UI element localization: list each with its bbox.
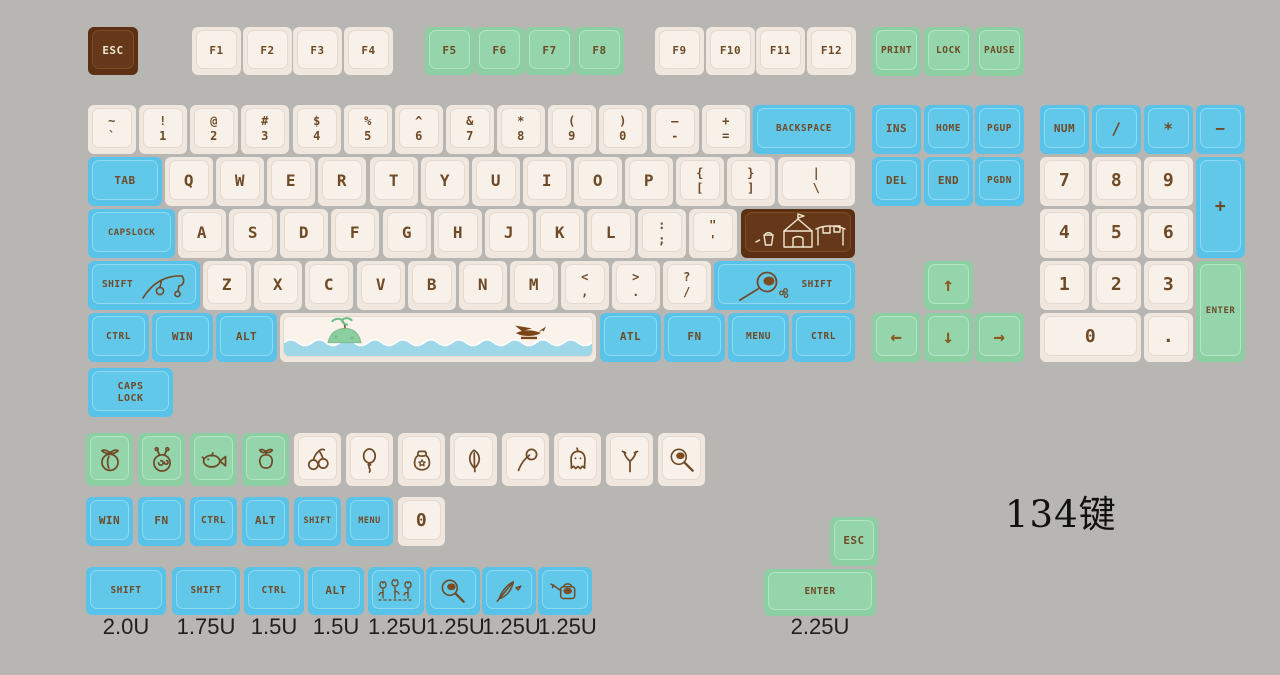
key-legend: Q — [184, 172, 194, 190]
key-print[interactable]: PRINT — [872, 27, 921, 76]
key-k[interactable]: K — [536, 209, 584, 258]
key-legend-bottom: 6 — [415, 130, 423, 144]
fishing-rod-icon — [140, 271, 186, 301]
key-numpad-0[interactable]: 0 — [1040, 313, 1141, 362]
key-legend: F10 — [720, 45, 741, 58]
key-legend-top: @ — [210, 115, 218, 129]
key-ctrl[interactable]: CTRL — [792, 313, 855, 362]
key-f3[interactable]: F3 — [293, 27, 342, 75]
key-arrow-left[interactable]: ← — [872, 313, 921, 362]
key-e[interactable]: E — [267, 157, 315, 206]
key-7[interactable]: &7 — [446, 105, 494, 154]
key-numpad-dot[interactable]: . — [1144, 313, 1193, 362]
key-arrow-right[interactable]: → — [975, 313, 1024, 362]
key-numpad-slash[interactable]: / — [1092, 105, 1141, 154]
key-fish[interactable] — [190, 433, 237, 486]
key-esc-green[interactable]: ESC — [830, 517, 878, 566]
key-legend: J — [504, 224, 514, 242]
key-q[interactable]: Q — [165, 157, 213, 206]
key-legend-bottom: = — [722, 130, 730, 144]
key-legend: WIN — [172, 331, 193, 344]
key-numpad-4[interactable]: 4 — [1040, 209, 1089, 258]
key-legend-bottom: 1 — [159, 130, 167, 144]
key-legend: 0 — [1085, 327, 1096, 348]
key-legend: W — [235, 172, 245, 190]
key-f9[interactable]: F9 — [655, 27, 704, 75]
key-p[interactable]: P — [625, 157, 673, 206]
key-legend: R — [337, 172, 347, 190]
key-legend: ENTER — [804, 587, 835, 598]
keyboard-layout: 134键 ESCF1F2F3F4F5F6F7F8F9F10F11F12PRINT… — [0, 0, 1280, 675]
key-enter-iso[interactable] — [741, 209, 855, 258]
key-numpad-2[interactable]: 2 — [1092, 261, 1141, 310]
key-f7[interactable]: F7 — [525, 27, 574, 75]
key-f11[interactable]: F11 — [756, 27, 805, 75]
key-5[interactable]: %5 — [344, 105, 392, 154]
size-label: 1.25U — [426, 614, 480, 640]
key-lock[interactable]: LOCK — [924, 27, 973, 76]
key-legend: F7 — [542, 45, 556, 58]
key-legend-bottom: 4 — [313, 130, 321, 144]
key-v[interactable]: V — [357, 261, 405, 310]
key-legend-top: { — [696, 167, 704, 181]
key-legend-top: | — [813, 167, 821, 181]
key-legend: TAB — [114, 175, 135, 188]
key-win[interactable]: WIN — [86, 497, 133, 546]
key-legend-top: % — [364, 115, 372, 129]
key-legend: PRINT — [881, 46, 912, 57]
key-o[interactable]: O — [574, 157, 622, 206]
key-pgup[interactable]: PGUP — [975, 105, 1024, 154]
key-win[interactable]: WIN — [152, 313, 213, 362]
key-net-small[interactable] — [658, 433, 705, 486]
key-legend: F8 — [592, 45, 606, 58]
key-n[interactable]: N — [459, 261, 507, 310]
key-legend: T — [389, 172, 399, 190]
key-legend: X — [273, 276, 283, 294]
key-legend: ATL — [620, 331, 641, 344]
key-feather[interactable] — [482, 567, 536, 615]
key-legend-bottom: LOCK — [117, 393, 143, 405]
key-legend: K — [555, 224, 565, 242]
key-legend: M — [529, 276, 539, 294]
key-legend: FN — [154, 515, 168, 528]
key-d[interactable]: D — [280, 209, 328, 258]
key-leaf[interactable] — [450, 433, 497, 486]
key-legend: ↓ — [943, 327, 955, 349]
key-legend: SHIFT — [102, 280, 133, 291]
key-legend: E — [286, 172, 296, 190]
key-legend-top: $ — [313, 115, 321, 129]
key-legend-bottom: ; — [658, 234, 666, 248]
key-legend-bottom: 8 — [517, 130, 525, 144]
key-numpad-7[interactable]: 7 — [1040, 157, 1089, 206]
key-ins[interactable]: INS — [872, 105, 921, 154]
page-title: 134键 — [1005, 484, 1117, 538]
key-legend-bottom: [ — [696, 182, 704, 196]
key-legend: ALT — [236, 331, 257, 344]
axe-icon — [511, 445, 541, 475]
key-axe[interactable] — [502, 433, 549, 486]
turnip-icon — [147, 445, 177, 475]
key-legend-bottom: 7 — [466, 130, 474, 144]
key-legend: F — [350, 224, 360, 242]
key-legend: + — [1215, 197, 1226, 218]
keycap-set-sheet: { "title": "134键", "palette": { "backgro… — [0, 0, 1280, 675]
key-legend: Z — [222, 276, 232, 294]
key-legend: L — [606, 224, 616, 242]
size-label: 1.5U — [244, 614, 304, 640]
key-pause[interactable]: PAUSE — [975, 27, 1024, 76]
key-z[interactable]: Z — [203, 261, 251, 310]
size-label: 2.0U — [86, 614, 166, 640]
key-legend: ↑ — [943, 275, 955, 297]
key-ctrl-15u[interactable]: CTRL — [244, 567, 304, 615]
key-ctrl[interactable]: CTRL — [88, 313, 149, 362]
key-legend: 8 — [1111, 171, 1122, 192]
key-slash[interactable]: ?/ — [663, 261, 711, 310]
key-legend: F12 — [821, 45, 842, 58]
key-legend: SHIFT — [303, 517, 331, 527]
key-grave[interactable]: ~` — [88, 105, 136, 154]
key-3[interactable]: #3 — [241, 105, 289, 154]
key-legend: S — [248, 224, 258, 242]
key-legend: MENU — [358, 517, 380, 527]
key-capslock[interactable]: CAPSLOCK — [88, 209, 175, 258]
key-legend-bottom: . — [632, 286, 640, 300]
key-legend: 0 — [416, 511, 427, 532]
key-legend: I — [542, 172, 552, 190]
key-legend-top: + — [722, 115, 730, 129]
key-turnip[interactable] — [138, 433, 185, 486]
size-label: 1.5U — [308, 614, 364, 640]
key-legend: CTRL — [811, 332, 836, 343]
key-balloon[interactable] — [346, 433, 393, 486]
key-legend: CTRL — [201, 516, 226, 527]
key-watering-can[interactable] — [538, 567, 592, 615]
key-legend: U — [491, 172, 501, 190]
key-f10[interactable]: F10 — [706, 27, 755, 75]
key-space[interactable] — [280, 313, 596, 362]
key-legend: − — [1215, 120, 1225, 138]
key-legend-top: # — [261, 115, 269, 129]
key-legend: 1 — [1059, 275, 1070, 296]
key-alt-15u[interactable]: ALT — [308, 567, 364, 615]
key-slingshot[interactable] — [606, 433, 653, 486]
key-legend: F2 — [260, 45, 274, 58]
key-arrow-up[interactable]: ↑ — [924, 261, 973, 310]
key-apple[interactable] — [242, 433, 289, 486]
key-f8[interactable]: F8 — [575, 27, 624, 75]
key-numpad-9[interactable]: 9 — [1144, 157, 1193, 206]
key-enter-225u[interactable]: ENTER — [764, 569, 876, 616]
key-legend: 2 — [1111, 275, 1122, 296]
key-legend: ALT — [325, 585, 346, 598]
key-legend: F6 — [492, 45, 506, 58]
key-legend: BACKSPACE — [776, 124, 832, 135]
key-t[interactable]: T — [370, 157, 418, 206]
key-m[interactable]: M — [510, 261, 558, 310]
key-s[interactable]: S — [229, 209, 277, 258]
key-legend: 9 — [1163, 171, 1174, 192]
key-legend: N — [478, 276, 488, 294]
bell-bag-icon — [407, 445, 437, 475]
key-legend-top: ? — [683, 271, 691, 285]
key-fn[interactable]: FN — [664, 313, 725, 362]
key-legend-top: ~ — [108, 115, 116, 129]
key-u[interactable]: U — [472, 157, 520, 206]
key-legend: CTRL — [262, 586, 287, 597]
key-home[interactable]: HOME — [924, 105, 973, 154]
key-legend: ENTER — [1206, 306, 1236, 316]
key-legend-bottom: - — [671, 130, 679, 144]
key-wisp[interactable] — [554, 433, 601, 486]
key-end[interactable]: END — [924, 157, 973, 206]
balloon-icon — [355, 445, 385, 475]
key-legend: CTRL — [106, 332, 131, 343]
key-8[interactable]: *8 — [497, 105, 545, 154]
key-bracket-close[interactable]: }] — [727, 157, 775, 206]
key-shift-175u[interactable]: SHIFT — [172, 567, 240, 615]
key-legend: F4 — [361, 45, 375, 58]
key-comma[interactable]: <, — [561, 261, 609, 310]
key-legend: 4 — [1059, 223, 1070, 244]
key-legend: 6 — [1163, 223, 1174, 244]
key-1[interactable]: !1 — [139, 105, 187, 154]
key-legend-bottom: 0 — [619, 130, 627, 144]
key-legend-top: < — [581, 271, 589, 285]
key-legend: P — [644, 172, 654, 190]
key-legend: PGDN — [987, 176, 1012, 187]
key-legend: C — [324, 276, 334, 294]
key-legend: F5 — [442, 45, 456, 58]
key-legend: V — [376, 276, 386, 294]
key-legend: F11 — [770, 45, 791, 58]
key-f2[interactable]: F2 — [243, 27, 292, 75]
key-legend: INS — [886, 123, 907, 136]
key-legend-bottom: ] — [747, 182, 755, 196]
key-legend: PGUP — [987, 124, 1012, 135]
key-legend: B — [427, 276, 437, 294]
key-numpad-plus[interactable]: + — [1196, 157, 1245, 258]
key-f[interactable]: F — [331, 209, 379, 258]
key-a[interactable]: A — [178, 209, 226, 258]
key-menu[interactable]: MENU — [346, 497, 393, 546]
key-numpad-1[interactable]: 1 — [1040, 261, 1089, 310]
key-legend: ESC — [102, 45, 123, 58]
key-legend-top: : — [658, 219, 666, 233]
key-legend: HOME — [936, 124, 961, 135]
wisp-icon — [563, 445, 593, 475]
key-numpad-star[interactable]: * — [1144, 105, 1193, 154]
key-caps-lock-alt[interactable]: CAPSLOCK — [88, 368, 173, 417]
key-legend-top: – — [671, 115, 679, 129]
leaf-icon — [459, 445, 489, 475]
slingshot-icon — [615, 445, 645, 475]
key-f12[interactable]: F12 — [807, 27, 856, 75]
key-legend: ← — [891, 327, 903, 349]
key-shift-right[interactable]: SHIFT — [714, 261, 855, 310]
key-legend: LOCK — [936, 46, 961, 57]
key-y[interactable]: Y — [421, 157, 469, 206]
key-legend: FN — [687, 331, 701, 344]
peach-icon — [95, 445, 125, 475]
key-menu[interactable]: MENU — [728, 313, 789, 362]
key-semicolon[interactable]: :; — [638, 209, 686, 258]
key-legend-top: > — [632, 271, 640, 285]
key-legend-top: CAPS — [117, 381, 143, 393]
key-f1[interactable]: F1 — [192, 27, 241, 75]
fish-icon — [199, 445, 229, 475]
key-legend: H — [453, 224, 463, 242]
key-f4[interactable]: F4 — [344, 27, 393, 75]
key-legend: D — [299, 224, 309, 242]
key-2[interactable]: @2 — [190, 105, 238, 154]
key-legend-top: } — [747, 167, 755, 181]
key-legend: NUM — [1054, 123, 1075, 136]
key-shift[interactable]: SHIFT — [294, 497, 341, 546]
key-f6[interactable]: F6 — [475, 27, 524, 75]
key-numpad-enter[interactable]: ENTER — [1196, 261, 1245, 362]
key-legend-top: & — [466, 115, 474, 129]
key-pan[interactable] — [426, 567, 480, 615]
key-atl[interactable]: ATL — [600, 313, 661, 362]
key-6[interactable]: ^6 — [395, 105, 443, 154]
key-9[interactable]: (9 — [548, 105, 596, 154]
key-period[interactable]: >. — [612, 261, 660, 310]
key-backslash[interactable]: |\ — [778, 157, 855, 206]
key-g[interactable]: G — [383, 209, 431, 258]
key-flowers[interactable] — [368, 567, 424, 615]
key-r[interactable]: R — [318, 157, 366, 206]
key-numpad-6[interactable]: 6 — [1144, 209, 1193, 258]
key-legend: 3 — [1163, 275, 1174, 296]
key-legend: ESC — [843, 535, 864, 548]
key-f5[interactable]: F5 — [425, 27, 474, 75]
key-l[interactable]: L — [587, 209, 635, 258]
watering-can-icon — [547, 577, 583, 605]
pan-icon — [437, 576, 469, 606]
key-del[interactable]: DEL — [872, 157, 921, 206]
key-pgdn[interactable]: PGDN — [975, 157, 1024, 206]
key-legend: F3 — [310, 45, 324, 58]
key-legend-bottom: 3 — [261, 130, 269, 144]
key-legend: Y — [440, 172, 450, 190]
key-legend-top: ! — [159, 115, 167, 129]
key-legend-bottom: ' — [709, 234, 717, 248]
feather-icon — [492, 577, 526, 605]
key-fn[interactable]: FN — [138, 497, 185, 546]
key-legend: G — [402, 224, 412, 242]
key-legend: → — [994, 327, 1006, 349]
key-num[interactable]: NUM — [1040, 105, 1089, 154]
size-label: 1.25U — [368, 614, 424, 640]
key-legend: F9 — [672, 45, 686, 58]
key-h[interactable]: H — [434, 209, 482, 258]
key-c[interactable]: C — [305, 261, 353, 310]
key-legend: DEL — [886, 175, 907, 188]
key-w[interactable]: W — [216, 157, 264, 206]
key-legend: PAUSE — [984, 46, 1015, 57]
apple-icon — [251, 445, 281, 475]
key-legend: SHIFT — [190, 586, 221, 597]
net-icon — [736, 269, 794, 303]
key-minus[interactable]: –- — [651, 105, 699, 154]
key-numpad-minus[interactable]: − — [1196, 105, 1245, 154]
key-cherry[interactable] — [294, 433, 341, 486]
key-numpad-8[interactable]: 8 — [1092, 157, 1141, 206]
key-0-single[interactable]: 0 — [398, 497, 445, 546]
key-equals[interactable]: += — [702, 105, 750, 154]
key-legend: / — [1111, 120, 1121, 138]
key-legend: . — [1163, 327, 1174, 348]
key-shift-2u[interactable]: SHIFT — [86, 567, 166, 615]
key-legend-top: ^ — [415, 115, 423, 129]
key-legend: END — [938, 175, 959, 188]
key-numpad-5[interactable]: 5 — [1092, 209, 1141, 258]
key-legend: 5 — [1111, 223, 1122, 244]
key-bell-bag[interactable] — [398, 433, 445, 486]
size-label: 1.25U — [482, 614, 536, 640]
key-peach[interactable] — [86, 433, 133, 486]
key-4[interactable]: $4 — [293, 105, 341, 154]
key-backspace[interactable]: BACKSPACE — [753, 105, 855, 154]
size-label: 2.25U — [764, 614, 876, 640]
house-scene — [744, 212, 852, 253]
key-legend-bottom: / — [683, 286, 691, 300]
pan-icon — [666, 445, 698, 475]
key-legend: MENU — [746, 332, 771, 343]
key-legend-bottom: \ — [813, 182, 821, 196]
key-esc[interactable]: ESC — [88, 27, 138, 75]
key-legend-bottom: 2 — [210, 130, 218, 144]
key-legend: SHIFT — [110, 586, 141, 597]
key-bracket-open[interactable]: {[ — [676, 157, 724, 206]
key-shift-left[interactable]: SHIFT — [88, 261, 200, 310]
key-legend-top: ( — [568, 115, 576, 129]
key-legend: WIN — [99, 515, 120, 528]
key-b[interactable]: B — [408, 261, 456, 310]
flowers-icon — [375, 577, 417, 605]
key-0[interactable]: )0 — [599, 105, 647, 154]
key-quote[interactable]: "' — [689, 209, 737, 258]
key-legend: 7 — [1059, 171, 1070, 192]
key-arrow-down[interactable]: ↓ — [924, 313, 973, 362]
key-legend: CAPSLOCK — [108, 228, 155, 238]
island-scene — [283, 316, 593, 357]
key-legend-bottom: 5 — [364, 130, 372, 144]
size-label: 1.25U — [538, 614, 592, 640]
key-legend-top: * — [517, 115, 525, 129]
key-legend: A — [197, 224, 207, 242]
key-numpad-3[interactable]: 3 — [1144, 261, 1193, 310]
key-x[interactable]: X — [254, 261, 302, 310]
key-ctrl[interactable]: CTRL — [190, 497, 237, 546]
key-i[interactable]: I — [523, 157, 571, 206]
key-legend: F1 — [209, 45, 223, 58]
key-j[interactable]: J — [485, 209, 533, 258]
key-legend: ALT — [255, 515, 276, 528]
key-legend-top: ) — [619, 115, 627, 129]
key-alt[interactable]: ALT — [242, 497, 289, 546]
key-legend: O — [593, 172, 603, 190]
key-tab[interactable]: TAB — [88, 157, 162, 206]
key-alt[interactable]: ALT — [216, 313, 277, 362]
size-label: 1.75U — [172, 614, 240, 640]
key-legend-bottom: , — [581, 286, 589, 300]
cherry-icon — [303, 445, 333, 475]
key-legend-bottom: 9 — [568, 130, 576, 144]
